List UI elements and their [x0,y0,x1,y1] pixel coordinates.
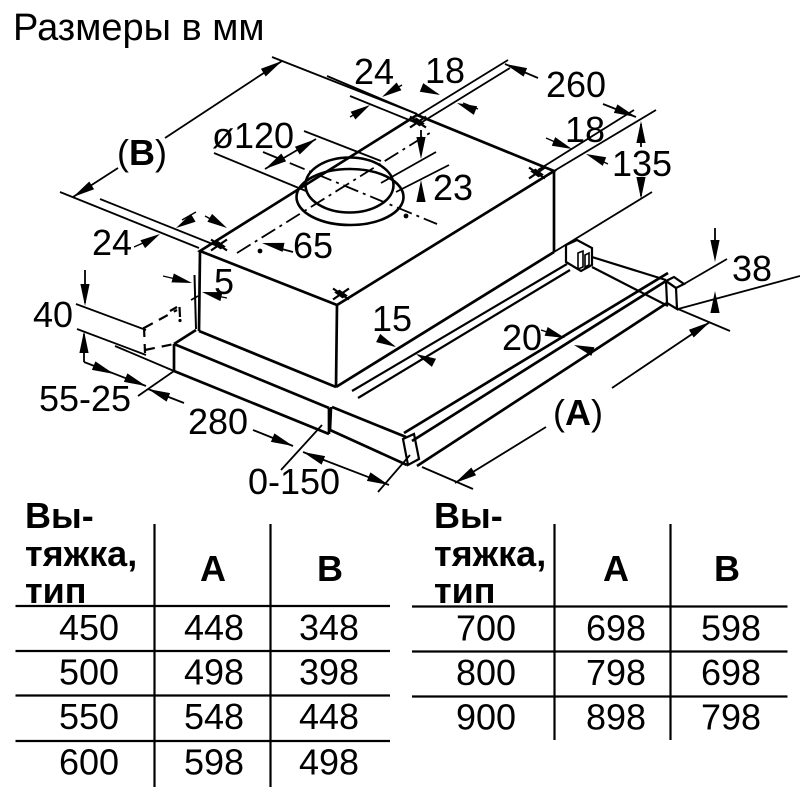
svg-text:23: 23 [433,167,473,208]
svg-text:498: 498 [184,652,244,693]
svg-text:тип: тип [434,570,496,611]
svg-text:600: 600 [59,742,119,783]
svg-text:280: 280 [188,401,248,442]
svg-text:Вы-: Вы- [434,495,503,536]
svg-text:(B): (B) [117,132,167,173]
svg-text:598: 598 [701,608,761,649]
svg-text:498: 498 [299,742,359,783]
svg-text:0-150: 0-150 [248,461,340,502]
svg-text:тяжка,: тяжка, [25,533,137,574]
svg-text:А: А [603,548,629,589]
svg-text:65: 65 [293,225,333,266]
svg-text:ø120: ø120 [212,115,294,156]
svg-text:448: 448 [184,607,244,648]
svg-text:800: 800 [456,652,516,693]
svg-text:Размеры в мм: Размеры в мм [13,7,264,49]
svg-text:38: 38 [732,248,772,289]
svg-text:135: 135 [612,143,672,184]
svg-text:398: 398 [299,652,359,693]
svg-text:448: 448 [299,696,359,737]
svg-text:798: 798 [586,652,646,693]
svg-text:798: 798 [701,697,761,738]
svg-text:15: 15 [372,298,412,339]
svg-text:598: 598 [184,742,244,783]
svg-text:898: 898 [586,697,646,738]
svg-text:698: 698 [586,608,646,649]
svg-text:18: 18 [565,109,605,150]
svg-text:В: В [714,548,740,589]
svg-text:550: 550 [59,696,119,737]
svg-text:698: 698 [701,652,761,693]
svg-text:348: 348 [299,607,359,648]
svg-text:40: 40 [33,294,73,335]
svg-text:В: В [317,548,343,589]
svg-text:Вы-: Вы- [25,495,94,536]
svg-text:тип: тип [25,570,87,611]
svg-text:900: 900 [456,697,516,738]
svg-text:500: 500 [59,652,119,693]
svg-text:5: 5 [214,261,234,302]
svg-text:548: 548 [184,696,244,737]
svg-text:260: 260 [546,64,606,105]
svg-text:24: 24 [354,51,394,92]
svg-text:450: 450 [59,607,119,648]
svg-text:700: 700 [456,608,516,649]
svg-text:20: 20 [502,317,542,358]
svg-text:18: 18 [425,50,465,91]
svg-text:55-25: 55-25 [39,378,131,419]
svg-text:(A): (A) [553,392,603,433]
svg-text:А: А [200,548,226,589]
svg-text:24: 24 [92,222,132,263]
svg-text:тяжка,: тяжка, [434,533,546,574]
